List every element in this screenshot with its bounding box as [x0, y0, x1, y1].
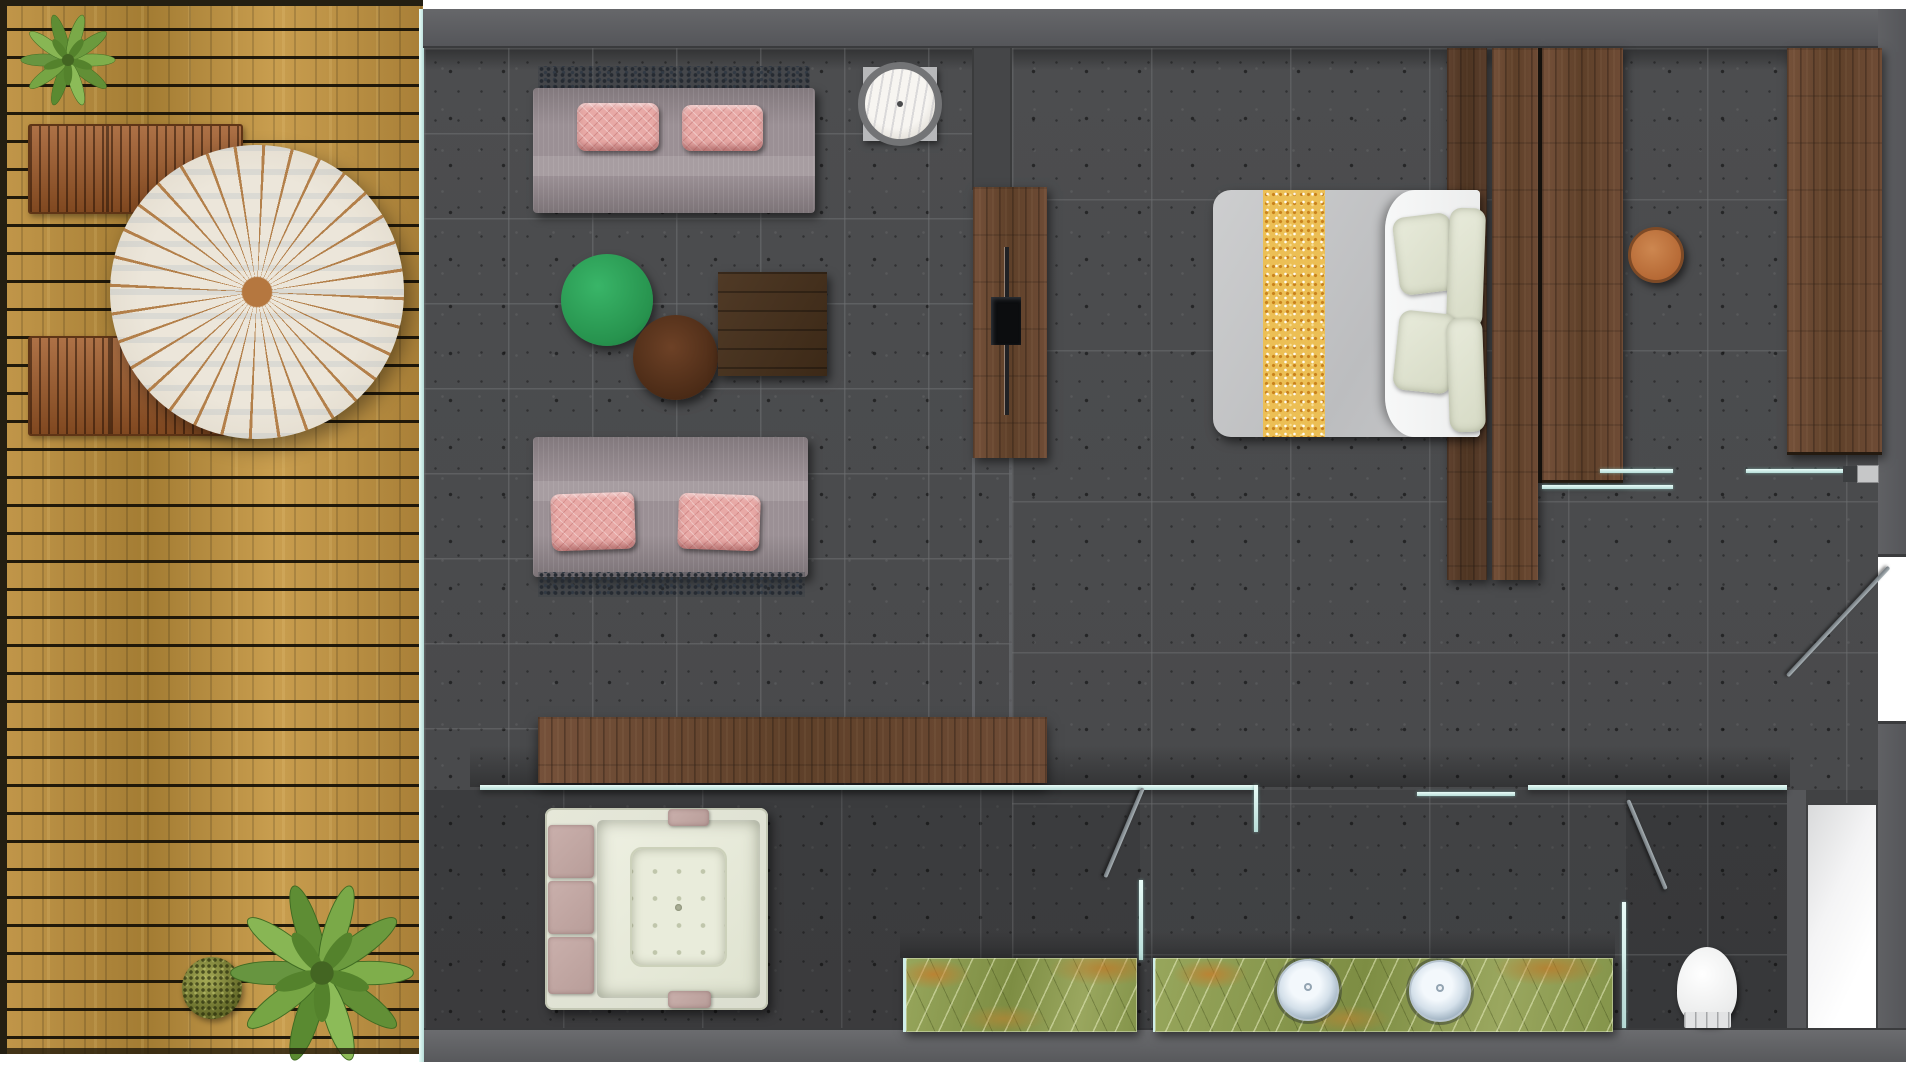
tv: [991, 297, 1021, 345]
wall-south: [424, 1028, 1906, 1062]
tub-cushion-2: [548, 881, 594, 934]
floor-track-left: [972, 458, 975, 717]
tub-headrest-top: [668, 809, 709, 826]
wardrobe-glass-track-3: [1542, 485, 1673, 489]
toilet-cistern: [1684, 1012, 1731, 1028]
green-ottoman: [561, 254, 653, 346]
sofa-1: [533, 88, 815, 213]
plant-bottom-fern: [222, 884, 422, 1062]
glass-divider-vanity: [1139, 880, 1143, 960]
wardrobe-glass-track-2: [1746, 469, 1843, 473]
pink-cushion-1: [577, 103, 659, 151]
tub-headrest-bottom: [668, 991, 711, 1008]
glass-return-panel: [1254, 785, 1258, 832]
pink-cushion-4: [677, 493, 761, 552]
floor-plan: [0, 0, 1920, 1080]
marble-side-table: [858, 62, 942, 146]
vanity-counter-left: [903, 958, 1137, 1032]
tub-jet-basin: [630, 847, 727, 967]
round-sink-2: [1409, 960, 1471, 1022]
floor-track-right: [1009, 458, 1012, 717]
vanity-shadow: [900, 932, 1615, 958]
sofa-seat-line: [533, 156, 815, 176]
pink-cushion-3: [550, 492, 636, 552]
bed-pillow-2: [1446, 207, 1486, 328]
plant-top-left: [18, 14, 118, 106]
wall-east: [1878, 9, 1906, 1062]
wardrobe-column-2: [1492, 48, 1538, 580]
tub-cushion-3: [548, 937, 594, 994]
sliding-door-panel: [1857, 465, 1879, 483]
vanity-counter-right: [1153, 958, 1613, 1032]
coffee-table: [718, 272, 827, 376]
wardrobe-glass-track-1: [1600, 469, 1673, 473]
dressing-stool: [1628, 227, 1684, 283]
glass-sliding-panel: [1417, 792, 1515, 796]
wardrobe-column-3: [1542, 48, 1623, 483]
tub-cushion-1: [548, 825, 594, 878]
sofa-2-fringe: [538, 572, 805, 597]
wall-wc-divider: [1787, 790, 1806, 1028]
sideboard-console: [538, 717, 1047, 783]
gold-bed-runner: [1263, 190, 1325, 437]
deck-edge: [0, 1048, 423, 1054]
glass-facade-west: [419, 9, 424, 1062]
pink-cushion-2: [682, 105, 763, 151]
terrace-deck: [0, 0, 423, 1054]
round-sink-1: [1277, 959, 1339, 1021]
wall-north: [423, 9, 1906, 48]
door-jamb-top: [1878, 554, 1906, 557]
shower-tray: [1806, 803, 1878, 1028]
glass-partition-main-right: [1528, 785, 1787, 790]
parasol-umbrella: [110, 145, 404, 439]
glass-divider-wc: [1622, 902, 1626, 1028]
bed-pillow-4: [1446, 317, 1486, 432]
door-jamb-bottom: [1878, 721, 1906, 724]
sliding-door-handle: [1843, 466, 1857, 482]
wardrobe-column-4: [1787, 48, 1882, 455]
jacuzzi-tub: [545, 808, 768, 1010]
partition-wall-tv: [972, 48, 1012, 190]
entry-door-opening: [1878, 557, 1906, 721]
brown-ottoman: [633, 315, 718, 400]
